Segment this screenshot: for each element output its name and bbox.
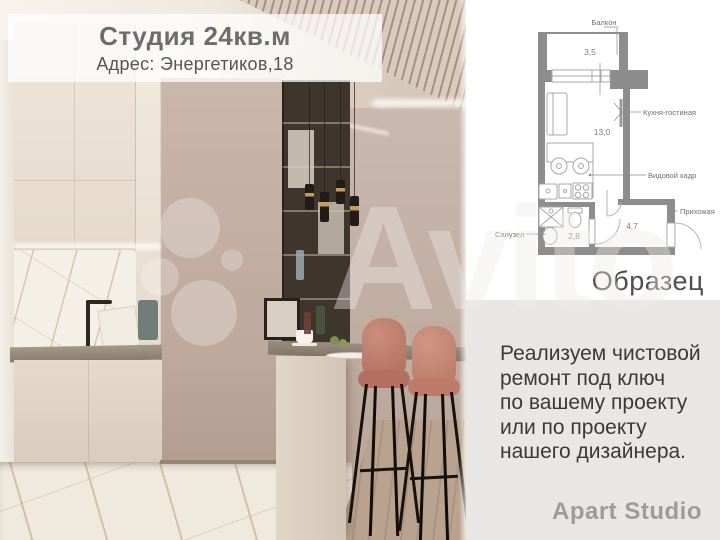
title-overlay: Студия 24кв.м Адрес: Энергетиков,18 xyxy=(8,14,382,82)
sample-label: Образец xyxy=(592,266,704,297)
promo-line: по вашему проекту xyxy=(500,391,701,416)
plan-wall xyxy=(618,199,668,205)
stool-footrest xyxy=(410,475,458,481)
plan-bath-door-arc xyxy=(595,219,620,244)
stool-leg xyxy=(441,394,449,540)
cabinet-seam xyxy=(14,180,136,181)
plan-area-hallway: 4,7 xyxy=(626,221,638,231)
plan-label-view-frame: Видовой кадр xyxy=(648,171,696,180)
bar-stool xyxy=(408,326,460,536)
pendant-light xyxy=(305,184,314,210)
stool-back xyxy=(412,326,456,384)
under-cabinet-light xyxy=(14,244,160,249)
plan-label-hallway: Прихожая xyxy=(680,207,715,216)
shelf-back-panel xyxy=(288,130,314,188)
saucer xyxy=(292,343,317,346)
plan-leader-view-dot xyxy=(589,174,592,177)
plan-wall xyxy=(589,207,595,219)
pendant-cord xyxy=(324,82,325,192)
apple xyxy=(339,339,347,347)
cutting-board xyxy=(97,306,140,351)
listing-address: Адрес: Энергетиков,18 xyxy=(8,54,382,75)
plan-wall xyxy=(538,202,595,207)
faucet-spout xyxy=(86,300,112,304)
utensil-holder xyxy=(138,300,158,340)
plan-wall xyxy=(538,33,547,72)
listing-banner: Студия 24кв.м Адрес: Энергетиков,18 xyxy=(0,0,720,540)
plan-leader-balcony xyxy=(604,27,617,55)
taupe-wall-panel xyxy=(160,78,282,466)
photo-edge-highlight xyxy=(459,0,466,540)
listing-title: Студия 24кв.м xyxy=(8,21,382,52)
pendant-light xyxy=(320,192,329,222)
plan-area-kitchen-living: 13,0 xyxy=(594,127,611,137)
interior-photo: Студия 24кв.м Адрес: Энергетиков,18 xyxy=(0,0,466,540)
decor-bottle xyxy=(296,250,304,280)
plan-bar-stool xyxy=(573,158,589,174)
plan-area-balcony: 3,5 xyxy=(584,47,596,57)
promo-line: ремонт под ключ xyxy=(500,367,701,392)
framed-art xyxy=(264,298,300,340)
plan-label-bathroom: Санузел xyxy=(495,230,524,239)
pendant-light xyxy=(336,180,345,204)
base-cabinets xyxy=(14,360,162,468)
plan-worktop xyxy=(559,184,571,198)
stool-leg xyxy=(419,394,427,540)
stool-back xyxy=(362,318,406,376)
plan-toilet-bowl xyxy=(569,213,581,228)
pendant-light xyxy=(350,196,359,226)
promo-panel: Реализуем чистовой ремонт под ключ по ва… xyxy=(466,300,720,540)
pendant-cord xyxy=(340,82,341,180)
bar-base-cabinet xyxy=(276,356,346,540)
floorplan-panel: Балкон 3,5 Кухня-гостиная 13,0 Видовой к… xyxy=(466,0,720,300)
wall-led-strip xyxy=(372,100,466,106)
plan-wall xyxy=(538,82,545,255)
faucet xyxy=(86,300,90,348)
apple xyxy=(330,336,339,345)
wine-bottle xyxy=(316,306,325,334)
wine-glass xyxy=(304,312,311,334)
plan-sink xyxy=(539,184,557,199)
plan-bar-counter xyxy=(547,143,593,162)
plan-balcony-parapet xyxy=(538,32,628,34)
floor-plan: Балкон 3,5 Кухня-гостиная 13,0 Видовой к… xyxy=(470,5,720,260)
plan-washbasin xyxy=(543,228,557,245)
plan-label-balcony: Балкон xyxy=(591,18,616,27)
pendant-cord xyxy=(309,82,310,184)
plan-bar-stool xyxy=(551,158,567,174)
plan-entry-door xyxy=(667,223,675,247)
plan-wall xyxy=(538,247,675,255)
plan-wall xyxy=(538,70,552,82)
plan-wall xyxy=(623,82,630,199)
plan-area-bathroom: 2,8 xyxy=(568,231,580,241)
plan-label-kitchen-living: Кухня-гостиная xyxy=(643,108,696,117)
promo-line: или по проекту xyxy=(500,416,701,441)
skirting xyxy=(160,460,282,464)
plan-entry-door-arc xyxy=(675,223,701,249)
cabinet-seam xyxy=(88,360,89,468)
promo-text: Реализуем чистовой ремонт под ключ по ва… xyxy=(500,342,701,465)
stool-leg xyxy=(369,386,377,536)
brand-name: Apart Studio xyxy=(552,498,702,526)
pendant-cord xyxy=(354,82,355,196)
stool-leg xyxy=(391,386,399,536)
plan-bath-door xyxy=(589,219,595,244)
promo-line: Реализуем чистовой xyxy=(500,342,701,367)
door-frame xyxy=(0,40,14,480)
stool-footrest xyxy=(360,467,408,473)
plan-sofa xyxy=(547,93,567,135)
plan-wall xyxy=(619,33,628,72)
promo-line: нашего дизайнера. xyxy=(500,440,701,465)
